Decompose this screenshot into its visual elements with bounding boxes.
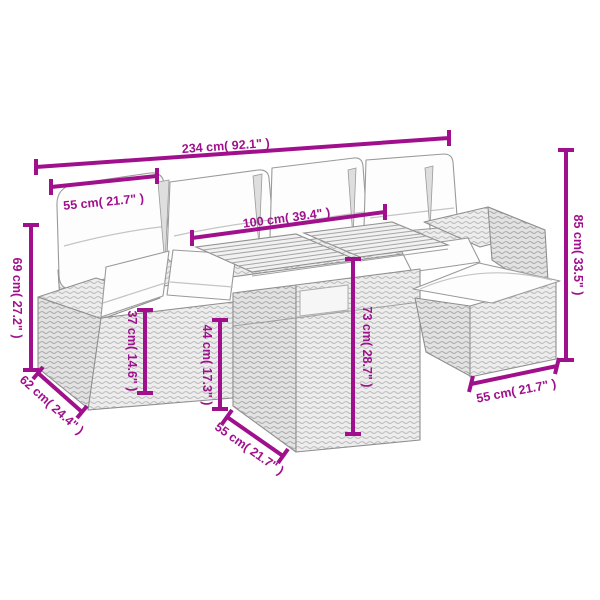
dimension-table-height-label: 73 cm( 28.7" ) <box>360 307 374 388</box>
dimension-backrest-height-label: 85 cm( 33.5" ) <box>571 215 585 296</box>
dimension-backrest-height: 85 cm( 33.5" ) <box>558 150 585 360</box>
dimension-stool-height-label: 44 cm( 17.3" ) <box>200 325 214 406</box>
dimension-diagram: 234 cm( 92.1" ) 55 cm( 21.7" ) 100 cm( 3… <box>0 0 600 600</box>
dimension-armrest-height: 69 cm( 27.2" ) <box>10 225 39 370</box>
footstool-body-side <box>415 298 472 377</box>
footstool <box>413 263 560 377</box>
dimension-seat-height-label: 37 cm( 14.6" ) <box>125 311 139 392</box>
dimension-armrest-height-label: 69 cm( 27.2" ) <box>10 258 24 339</box>
dimension-armrest-height-line <box>23 225 39 370</box>
furniture-diagram-canvas: 234 cm( 92.1" ) 55 cm( 21.7" ) 100 cm( 3… <box>0 0 600 600</box>
table-drawer-panel <box>300 285 348 316</box>
